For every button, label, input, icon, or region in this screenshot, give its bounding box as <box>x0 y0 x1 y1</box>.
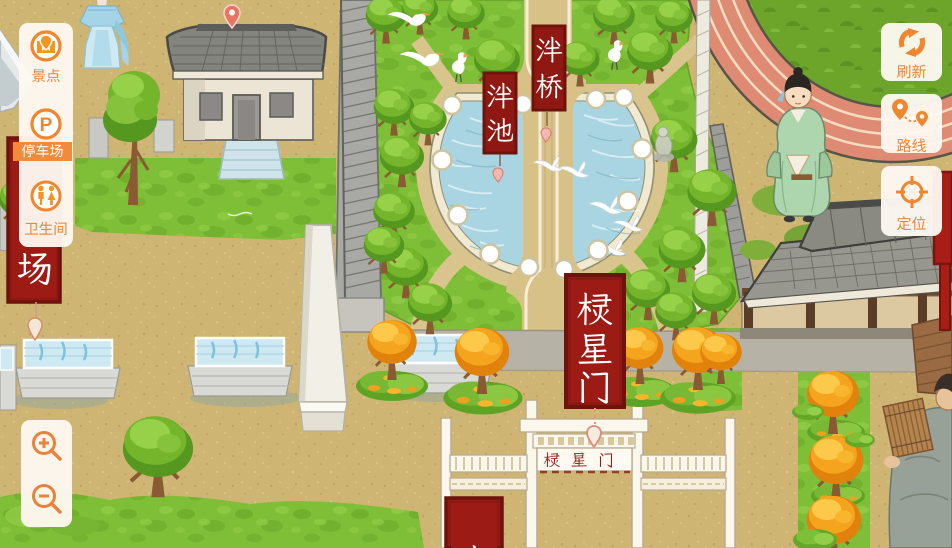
svg-text:场: 场 <box>16 243 54 293</box>
svg-text:泮: 泮 <box>535 31 563 68</box>
svg-text:P: P <box>40 115 53 136</box>
svg-text:池: 池 <box>486 111 514 148</box>
svg-text:棂星门: 棂星门 <box>544 448 625 471</box>
svg-text:大: 大 <box>458 537 492 548</box>
svg-text:泮: 泮 <box>486 77 514 114</box>
svg-text:门: 门 <box>577 362 614 411</box>
svg-text:桥: 桥 <box>535 67 563 104</box>
